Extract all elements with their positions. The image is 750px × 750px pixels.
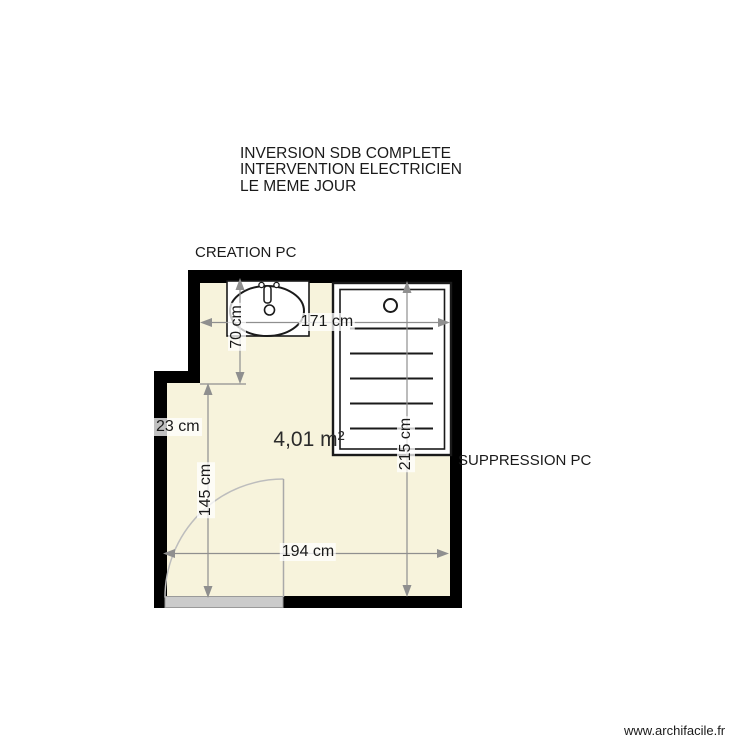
sink-drain-icon [265, 305, 275, 315]
wall-left-upper [188, 270, 200, 383]
door-threshold [165, 597, 283, 608]
wall-bottom [283, 596, 462, 608]
archifacile-watermark[interactable]: www.archifacile.fr [624, 723, 725, 738]
floor-plan-drawing [0, 0, 750, 750]
faucet-knob-right-icon [274, 282, 279, 287]
dimension-wall-step: 23 cm [154, 418, 202, 436]
dimension-sink-depth: 70 cm [228, 303, 246, 351]
dimension-shower-height: 215 cm [397, 416, 415, 472]
room-area-label: 4,01 m² [271, 428, 346, 452]
dimension-left-height: 145 cm [197, 462, 215, 518]
note-line-1: INVERSION SDB COMPLETE [240, 146, 462, 162]
note-line-2: INTERVENTION ELECTRICIEN [240, 162, 462, 178]
faucet-spout-icon [264, 286, 271, 303]
shower-drain-icon [384, 299, 397, 312]
plan-notes: INVERSION SDB COMPLETE INTERVENTION ELEC… [240, 146, 462, 195]
floor-plan-page: INVERSION SDB COMPLETE INTERVENTION ELEC… [0, 0, 750, 750]
creation-pc-label: CREATION PC [195, 244, 296, 261]
wall-left-lower [154, 371, 167, 608]
note-line-3: LE MEME JOUR [240, 179, 462, 195]
faucet-knob-left-icon [259, 282, 264, 287]
shower-fixture [333, 283, 451, 455]
suppression-pc-label: SUPPRESSION PC [458, 452, 591, 469]
dimension-bottom-width: 194 cm [280, 543, 336, 561]
dimension-top-width: 171 cm [299, 313, 355, 331]
